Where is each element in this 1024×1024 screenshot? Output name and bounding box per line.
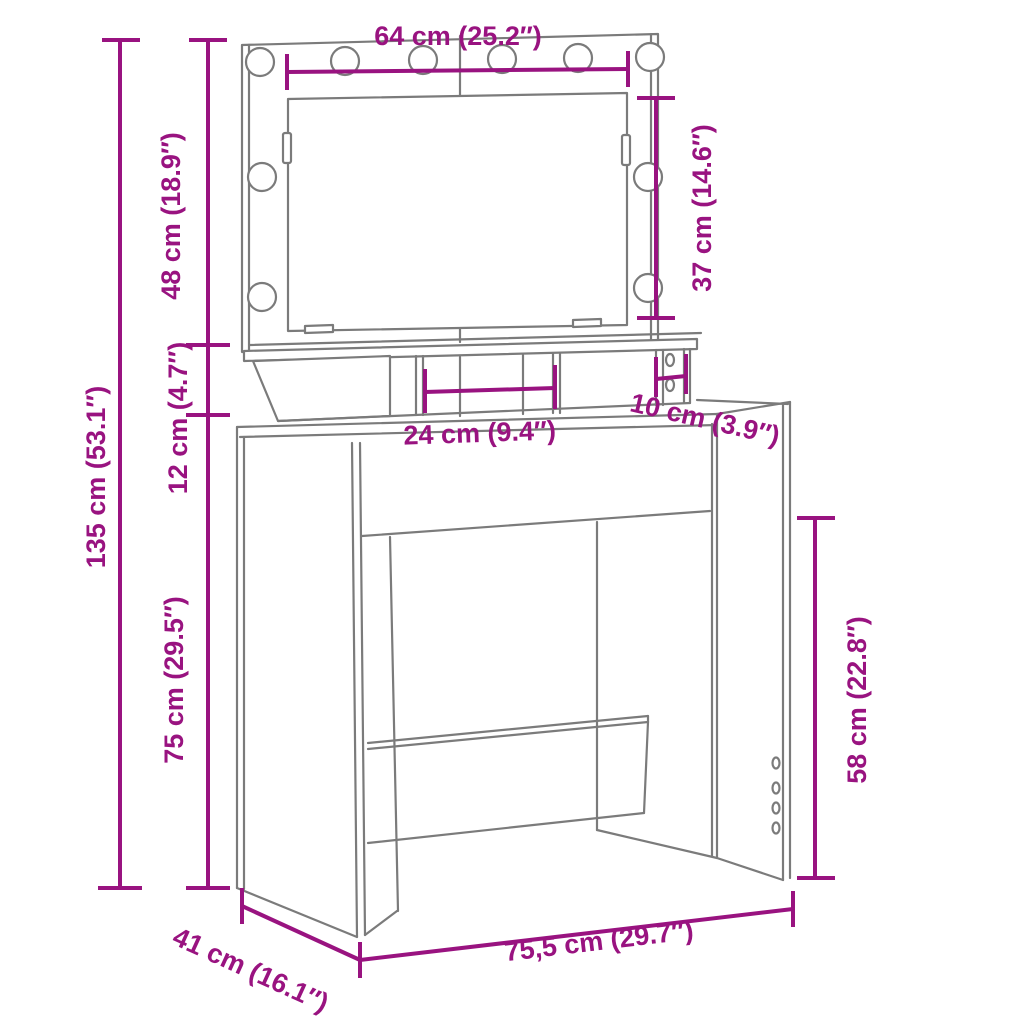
- shelf-left-cubby: [253, 356, 390, 421]
- mirror-clip-left: [283, 133, 291, 163]
- dim-label-upper-height: 48 cm (18.9″): [156, 132, 186, 300]
- dim-total-width: 75,5 cm (29.7″): [360, 891, 793, 967]
- dim-label-compartment-width: 24 cm (9.4″): [403, 415, 556, 450]
- dim-label-mirror-height: 37 cm (14.6″): [687, 124, 717, 292]
- dim-label-side-compartment: 10 cm (3.9″): [627, 387, 782, 451]
- led-bulb: [248, 283, 276, 311]
- dim-compartment-width: 24 cm (9.4″): [403, 365, 556, 451]
- crossbar-panel: [368, 716, 648, 843]
- dim-label-table-height: 75 cm (29.5″): [159, 596, 189, 764]
- led-bulb: [248, 163, 276, 191]
- dim-label-total-height: 135 cm (53.1″): [81, 386, 111, 569]
- dim-label-leg-clearance: 58 cm (22.8″): [842, 616, 872, 784]
- dim-depth: 41 cm (16.1″): [168, 888, 360, 1018]
- dim-total-height: 135 cm (53.1″): [81, 40, 142, 888]
- dim-height-segments: 48 cm (18.9″) 12 cm (4.7″) 75 cm (29.5″): [156, 40, 230, 888]
- led-bulb: [246, 48, 274, 76]
- panel-hole: [773, 758, 780, 769]
- dressing-table-dimension-diagram: 64 cm (25.2″) 37 cm (14.6″) 135 cm (53.1…: [0, 0, 1024, 1024]
- dim-label-shelf-height: 12 cm (4.7″): [163, 342, 193, 495]
- mirror-clip-bottom-right: [573, 319, 601, 327]
- shelf-hole: [666, 379, 674, 391]
- shelf-hole: [666, 354, 674, 366]
- led-bulb: [636, 43, 664, 71]
- mirror-clip-bottom-left: [305, 325, 333, 333]
- dim-label-mirror-width: 64 cm (25.2″): [374, 21, 542, 51]
- dim-leg-clearance: 58 cm (22.8″): [797, 518, 872, 878]
- mirror-clip-right: [622, 135, 630, 165]
- panel-hole: [773, 803, 780, 814]
- dim-label-total-width: 75,5 cm (29.7″): [503, 915, 695, 967]
- dimension-diagram-stage: 64 cm (25.2″) 37 cm (14.6″) 135 cm (53.1…: [0, 0, 1024, 1024]
- table: [237, 400, 790, 937]
- mirror-glass: [283, 93, 630, 333]
- panel-hole: [773, 783, 780, 794]
- panel-hole: [773, 823, 780, 834]
